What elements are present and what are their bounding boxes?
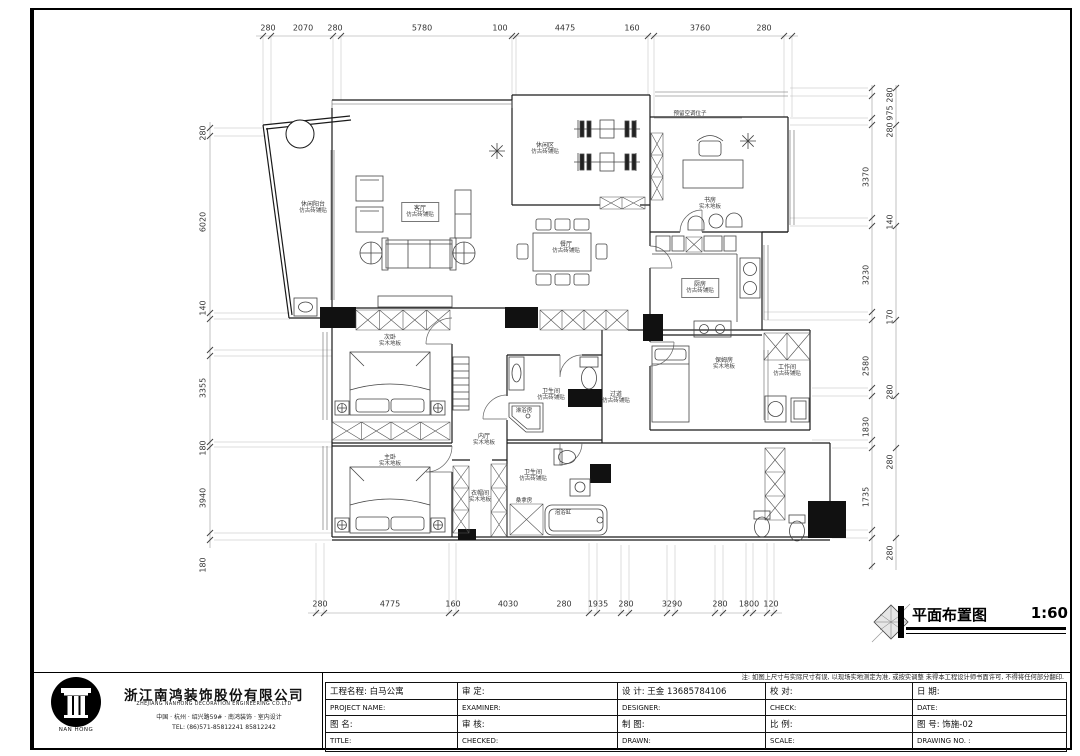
dim-left-5: 3940 bbox=[199, 488, 208, 508]
dim-bottom-10: 120 bbox=[763, 600, 778, 609]
dim-right-3: 3370 bbox=[862, 167, 871, 187]
plan-title: 平面布置图 1:60 bbox=[912, 604, 1068, 625]
tb-title: 图 名: bbox=[326, 716, 458, 733]
dim-right-4: 140 bbox=[886, 214, 895, 229]
dim-bottom-3: 4030 bbox=[498, 600, 518, 609]
room-label-nanny: 保姆房实木地板 bbox=[713, 357, 735, 371]
tb-examiner-en: EXAMINER: bbox=[458, 700, 618, 716]
tb-project-en: PROJECT NAME: bbox=[326, 700, 458, 716]
company-logo-text: NAN HONG bbox=[48, 727, 104, 733]
dim-top-3: 5780 bbox=[412, 24, 432, 33]
room-label-kitchen: 厨房仿古砖铺贴 bbox=[681, 278, 719, 298]
dim-right-8: 280 bbox=[886, 384, 895, 399]
room-label-balcony: 休闲阳台仿古砖铺贴 bbox=[299, 201, 327, 215]
dim-right-9: 1830 bbox=[862, 417, 871, 437]
plan-title-icon bbox=[872, 604, 910, 642]
dim-bottom-1: 4775 bbox=[380, 600, 400, 609]
room-label-study: 书房实木地板 bbox=[699, 197, 721, 211]
dim-bottom-0: 280 bbox=[312, 600, 327, 609]
dim-left-1: 6020 bbox=[199, 212, 208, 232]
annotation-sauna: 桑拿房 bbox=[516, 496, 533, 504]
tb-designer-en: DESIGNER: bbox=[618, 700, 766, 716]
tb-audit: 审 核: bbox=[458, 716, 618, 733]
room-label-bath1: 卫生间仿古砖铺贴 bbox=[537, 388, 565, 402]
plan-title-underline bbox=[906, 627, 1066, 630]
dim-top-0: 280 bbox=[260, 24, 275, 33]
tb-examiner: 审 定: bbox=[458, 683, 618, 700]
dim-left-3: 3355 bbox=[199, 378, 208, 398]
room-label-dining: 餐厅仿古砖铺贴 bbox=[552, 241, 580, 255]
company-address: 中国 · 杭州 · 绍兴路59# · 南鸿装饰 · 室内设计 bbox=[118, 712, 320, 721]
dim-bottom-5: 1935 bbox=[588, 600, 608, 609]
room-label-master: 主卧实木地板 bbox=[379, 454, 401, 468]
dim-top-4: 100 bbox=[492, 24, 507, 33]
tb-number: 图 号: 饰施-02 bbox=[913, 716, 1066, 733]
company-logo bbox=[51, 677, 101, 727]
dim-bottom-4: 280 bbox=[556, 600, 571, 609]
dim-top-1: 2070 bbox=[293, 24, 313, 33]
tb-audit-en: CHECKED: bbox=[458, 733, 618, 749]
tb-title-en: TITLE: bbox=[326, 733, 458, 749]
dim-right-11: 1735 bbox=[862, 487, 871, 507]
tb-project: 工程名程: 白马公寓 bbox=[326, 683, 458, 700]
tb-check-en: CHECK: bbox=[766, 700, 913, 716]
dim-right-1: 975 bbox=[886, 105, 895, 120]
dim-bottom-9: 1800 bbox=[739, 600, 759, 609]
dim-top-2: 280 bbox=[327, 24, 342, 33]
plan-scale-text: 1:60 bbox=[1031, 604, 1068, 625]
company-name: 浙江南鸿装饰股份有限公司 bbox=[108, 684, 320, 704]
room-label-bath2: 卫生间仿古砖铺贴 bbox=[519, 469, 547, 483]
room-label-workroom: 工作间仿古砖铺贴 bbox=[773, 364, 801, 378]
annotation-shower: 淋浴房 bbox=[516, 406, 533, 414]
dim-left-2: 140 bbox=[199, 300, 208, 315]
tb-scale-en: SCALE: bbox=[766, 733, 913, 749]
tb-date-en: DATE: bbox=[913, 700, 1066, 716]
dim-bottom-7: 3290 bbox=[662, 600, 682, 609]
dim-top-8: 280 bbox=[756, 24, 771, 33]
annotation-reserve-note: 预留空调位子 bbox=[673, 109, 706, 117]
tb-draw-en: DRAWN: bbox=[618, 733, 766, 749]
floor-plan-drawing bbox=[0, 0, 1080, 756]
dim-right-6: 170 bbox=[886, 309, 895, 324]
company-tel: TEL: (86)571-85812241 85812242 bbox=[128, 724, 320, 731]
tb-number-en: DRAWING NO. : bbox=[913, 733, 1066, 749]
room-label-leisure: 休闲区仿古砖铺贴 bbox=[531, 142, 559, 156]
tb-draw: 制 图: bbox=[618, 716, 766, 733]
dim-right-12: 280 bbox=[886, 545, 895, 560]
dim-bottom-2: 160 bbox=[445, 600, 460, 609]
room-label-bedroom2: 次卧实木地板 bbox=[379, 334, 401, 348]
dim-right-0: 280 bbox=[886, 87, 895, 102]
dim-left-6: 180 bbox=[199, 557, 208, 572]
room-label-innerhall: 内厅实木地板 bbox=[473, 433, 495, 447]
dim-top-7: 3760 bbox=[690, 24, 710, 33]
dim-right-7: 2580 bbox=[862, 356, 871, 376]
tb-check: 校 对: bbox=[766, 683, 913, 700]
room-label-living: 客厅仿古砖铺贴 bbox=[401, 202, 439, 222]
titleblock-table: 工程名程: 白马公寓 审 定: 设 计: 王金 13685784106 校 对:… bbox=[325, 682, 1067, 752]
dim-left-0: 280 bbox=[199, 125, 208, 140]
annotation-bathtub: 泡浴缸 bbox=[555, 508, 572, 516]
dim-right-10: 280 bbox=[886, 454, 895, 469]
tb-designer: 设 计: 王金 13685784106 bbox=[618, 683, 766, 700]
dim-bottom-8: 280 bbox=[712, 600, 727, 609]
plan-title-text: 平面布置图 bbox=[912, 604, 987, 625]
room-label-cloak: 衣帽间实木地板 bbox=[469, 490, 491, 504]
tb-date: 日 期: bbox=[913, 683, 1066, 700]
room-label-corridor: 过道仿古砖铺贴 bbox=[602, 391, 630, 405]
plan-title-underline-thin bbox=[906, 633, 1066, 634]
dim-right-2: 280 bbox=[886, 122, 895, 137]
dim-top-5: 4475 bbox=[555, 24, 575, 33]
sheet-note: 注: 如图上尺寸与实际尺寸有误, 以现场实地测定为准, 或按实调整 未得本工程设… bbox=[640, 672, 1064, 681]
dim-top-6: 160 bbox=[624, 24, 639, 33]
dim-right-5: 3230 bbox=[862, 265, 871, 285]
company-name-en: ZHEJIANG NANHONG DECORATION ENGINEERING … bbox=[108, 702, 320, 707]
tb-scale: 比 例: bbox=[766, 716, 913, 733]
dim-left-4: 180 bbox=[199, 440, 208, 455]
dim-bottom-6: 280 bbox=[618, 600, 633, 609]
